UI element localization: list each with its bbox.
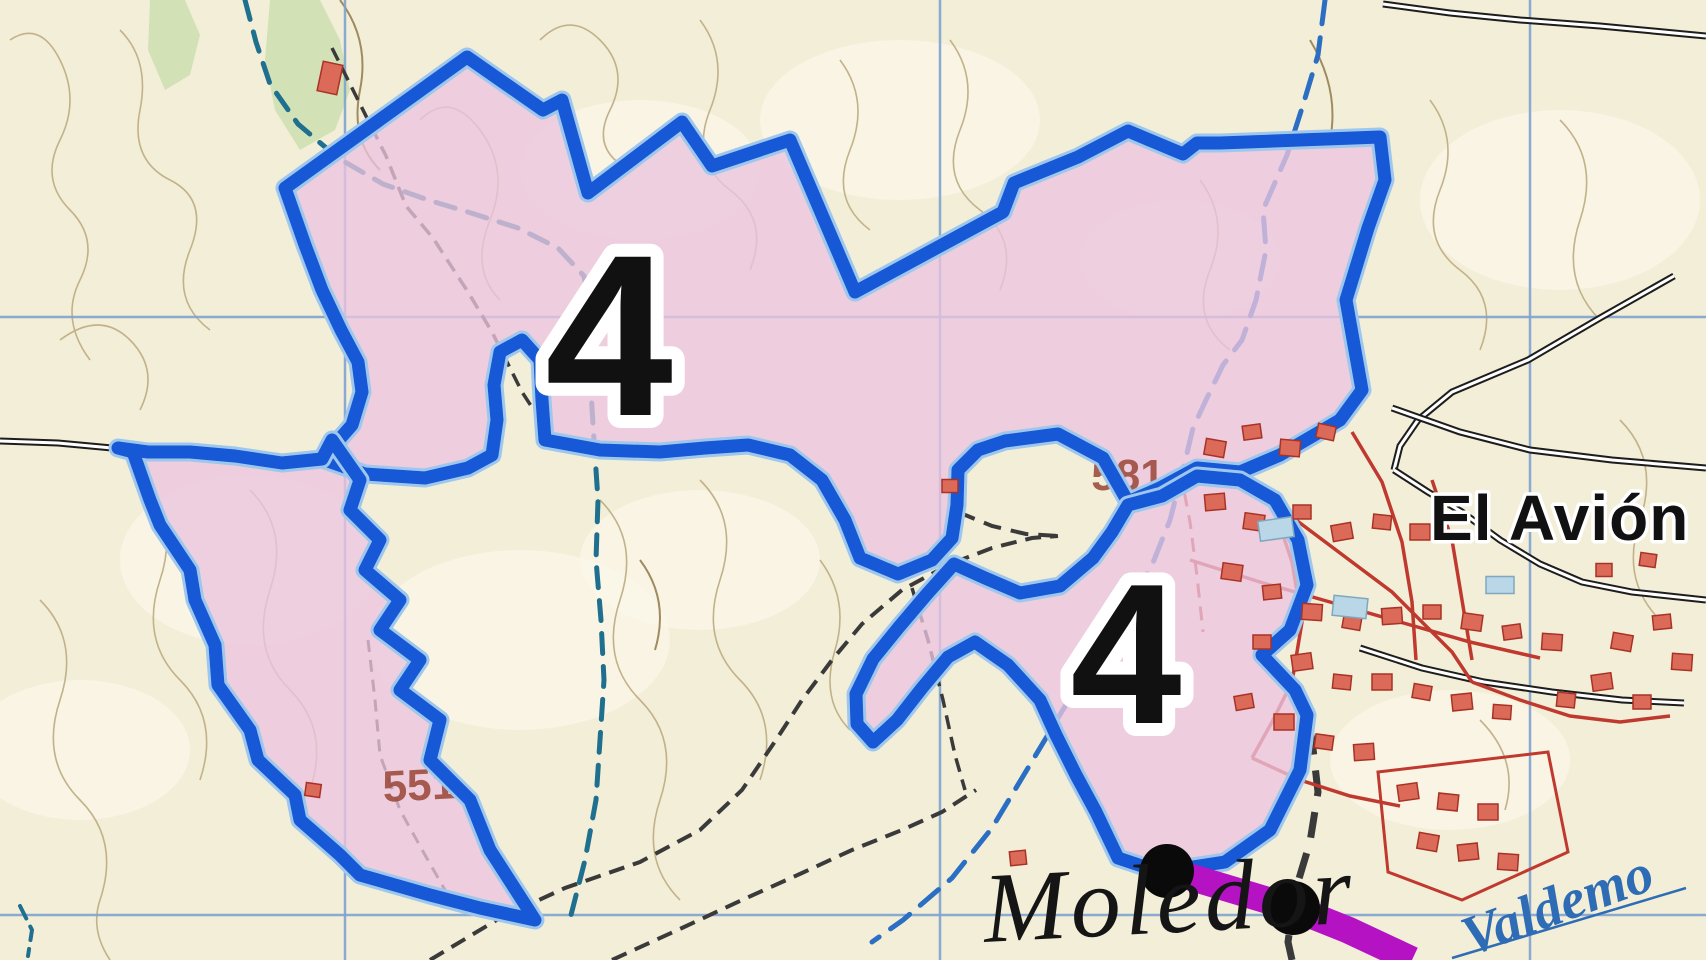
building-red xyxy=(1279,439,1300,457)
building-red xyxy=(1314,734,1334,750)
map-viewport[interactable]: 551 581 4 4 El Avión Moledor Valdemo xyxy=(0,0,1706,960)
building-red xyxy=(1633,695,1651,709)
town-label-el-avion: El Avión xyxy=(1430,482,1689,554)
building-red xyxy=(1497,853,1518,870)
building-red xyxy=(1410,524,1430,540)
building-red xyxy=(1381,607,1402,624)
building-red xyxy=(1493,704,1512,719)
building-red xyxy=(1331,522,1353,541)
building-red xyxy=(1397,783,1419,802)
building-red xyxy=(1652,614,1671,630)
building-red xyxy=(1372,674,1392,690)
building-red xyxy=(1204,493,1225,511)
building-red xyxy=(1291,653,1313,672)
building-red xyxy=(1423,605,1441,619)
building-red xyxy=(1596,564,1612,577)
building-red xyxy=(1316,423,1337,440)
zone-number-label: 4 xyxy=(1070,543,1181,766)
building-red xyxy=(1611,632,1633,651)
building-blue xyxy=(1486,577,1514,594)
building-red xyxy=(1437,793,1459,811)
building-red xyxy=(1451,693,1473,711)
building-red xyxy=(1457,843,1479,861)
zone-number-label: 4 xyxy=(545,207,673,464)
building-blue xyxy=(1332,595,1368,618)
building-red xyxy=(1671,653,1692,670)
building-red xyxy=(1556,692,1575,708)
building-red xyxy=(1301,603,1322,620)
building-red xyxy=(1234,694,1254,711)
terrain-highlight xyxy=(1420,110,1700,290)
building-red xyxy=(1204,438,1226,457)
building-red xyxy=(1262,584,1281,600)
building-red xyxy=(942,480,958,493)
building-red xyxy=(1591,673,1613,692)
building-red xyxy=(1417,832,1439,851)
building-red xyxy=(1274,714,1294,730)
building-red xyxy=(1293,505,1311,519)
building-red xyxy=(1461,613,1483,632)
building-red xyxy=(1353,743,1374,760)
building-red xyxy=(1502,624,1522,640)
building-red xyxy=(1253,635,1271,649)
terrain-highlight xyxy=(580,490,820,630)
building-red xyxy=(1332,674,1351,690)
map-canvas[interactable]: 551 581 4 4 El Avión Moledor Valdemo xyxy=(0,0,1706,960)
building-blue xyxy=(1258,517,1294,542)
building-red xyxy=(1242,424,1262,440)
building-red xyxy=(1412,684,1432,701)
building-red xyxy=(1478,804,1498,820)
place-label-moledor: Moledor xyxy=(978,834,1358,960)
building-red xyxy=(1372,514,1391,530)
building-red xyxy=(1221,563,1243,582)
building-red xyxy=(305,783,322,798)
building-red xyxy=(1639,552,1657,567)
building-red xyxy=(1541,633,1562,650)
